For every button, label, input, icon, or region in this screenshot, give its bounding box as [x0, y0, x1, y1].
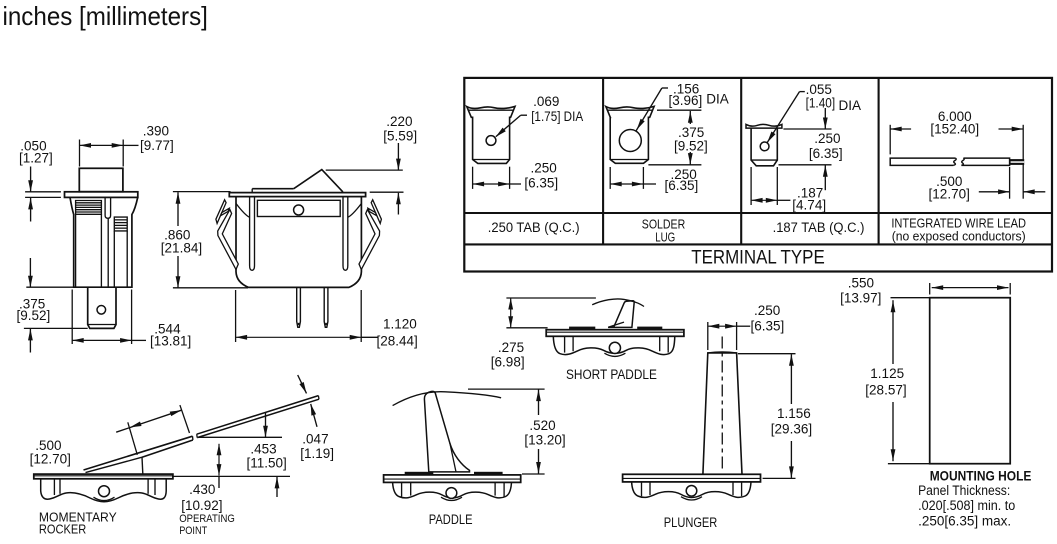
- svg-text:[9.77]: [9.77]: [140, 138, 174, 153]
- svg-text:1.120: 1.120: [383, 317, 417, 332]
- svg-text:.047: .047: [302, 431, 328, 446]
- svg-text:[1.27]: [1.27]: [19, 150, 53, 165]
- svg-text:TERMINAL TYPE: TERMINAL TYPE: [691, 248, 825, 269]
- svg-text:[12.70]: [12.70]: [929, 187, 970, 202]
- svg-text:[6.35]: [6.35]: [751, 319, 785, 334]
- svg-text:.250[6.35] max.: .250[6.35] max.: [918, 513, 1011, 528]
- svg-text:.453: .453: [250, 441, 276, 456]
- svg-text:POINT: POINT: [179, 525, 207, 537]
- svg-text:[6.35]: [6.35]: [809, 146, 843, 161]
- svg-text:[4.74]: [4.74]: [792, 198, 826, 213]
- svg-text:.250: .250: [531, 161, 557, 176]
- svg-text:DIA: DIA: [706, 92, 729, 107]
- svg-text:[21.84]: [21.84]: [161, 241, 202, 256]
- svg-text:[28.44]: [28.44]: [377, 334, 418, 349]
- svg-text:DIA: DIA: [839, 98, 862, 113]
- svg-text:.020[.508] min. to: .020[.508] min. to: [918, 498, 1015, 513]
- svg-text:LUG: LUG: [655, 231, 675, 245]
- svg-text:[1.19]: [1.19]: [300, 446, 334, 461]
- svg-text:Panel Thickness:: Panel Thickness:: [918, 483, 1010, 498]
- svg-text:[13.97]: [13.97]: [840, 290, 881, 305]
- svg-text:SHORT PADDLE: SHORT PADDLE: [566, 367, 657, 382]
- svg-text:[29.36]: [29.36]: [771, 422, 812, 437]
- svg-text:[13.20]: [13.20]: [524, 432, 565, 447]
- svg-text:PLUNGER: PLUNGER: [664, 515, 718, 530]
- svg-text:.275: .275: [498, 340, 524, 355]
- svg-text:[1.40]: [1.40]: [806, 95, 836, 110]
- svg-text:[6.35]: [6.35]: [665, 178, 699, 193]
- svg-text:.390: .390: [143, 123, 169, 138]
- svg-text:ROCKER: ROCKER: [39, 521, 86, 536]
- svg-text:[28.57]: [28.57]: [865, 383, 906, 398]
- svg-text:[3.96]: [3.96]: [669, 93, 703, 108]
- svg-text:OPERATING: OPERATING: [179, 513, 235, 525]
- svg-text:[5.59]: [5.59]: [383, 129, 417, 144]
- svg-text:[6.35]: [6.35]: [524, 175, 558, 190]
- svg-text:.550: .550: [848, 275, 874, 290]
- svg-text:SOLDER: SOLDER: [642, 218, 685, 232]
- svg-text:[1.75] DIA: [1.75] DIA: [531, 109, 583, 124]
- svg-text:PADDLE: PADDLE: [429, 512, 473, 527]
- svg-text:.069: .069: [533, 94, 559, 109]
- svg-text:MOUNTING HOLE: MOUNTING HOLE: [930, 467, 1032, 483]
- svg-text:[13.81]: [13.81]: [150, 334, 191, 349]
- svg-text:[6.98]: [6.98]: [491, 354, 525, 369]
- svg-text:[10.92]: [10.92]: [181, 498, 222, 513]
- svg-text:inches [millimeters]: inches [millimeters]: [3, 1, 208, 31]
- svg-text:1.156: 1.156: [777, 406, 811, 421]
- svg-text:.250: .250: [754, 303, 780, 318]
- svg-text:.187 TAB (Q.C.): .187 TAB (Q.C.): [773, 220, 865, 235]
- svg-text:1.125: 1.125: [870, 366, 904, 381]
- svg-text:.220: .220: [386, 114, 412, 129]
- svg-text:.250: .250: [814, 131, 840, 146]
- svg-text:[9.52]: [9.52]: [674, 139, 708, 154]
- svg-text:(no exposed conductors): (no exposed conductors): [892, 229, 1026, 244]
- svg-text:.430: .430: [189, 482, 215, 497]
- svg-text:[152.40]: [152.40]: [930, 121, 979, 136]
- svg-text:.250 TAB (Q.C.): .250 TAB (Q.C.): [488, 220, 580, 235]
- svg-text:.520: .520: [529, 418, 555, 433]
- svg-text:[12.70]: [12.70]: [30, 452, 71, 467]
- svg-text:[11.50]: [11.50]: [247, 455, 287, 470]
- svg-text:[9.52]: [9.52]: [17, 308, 51, 323]
